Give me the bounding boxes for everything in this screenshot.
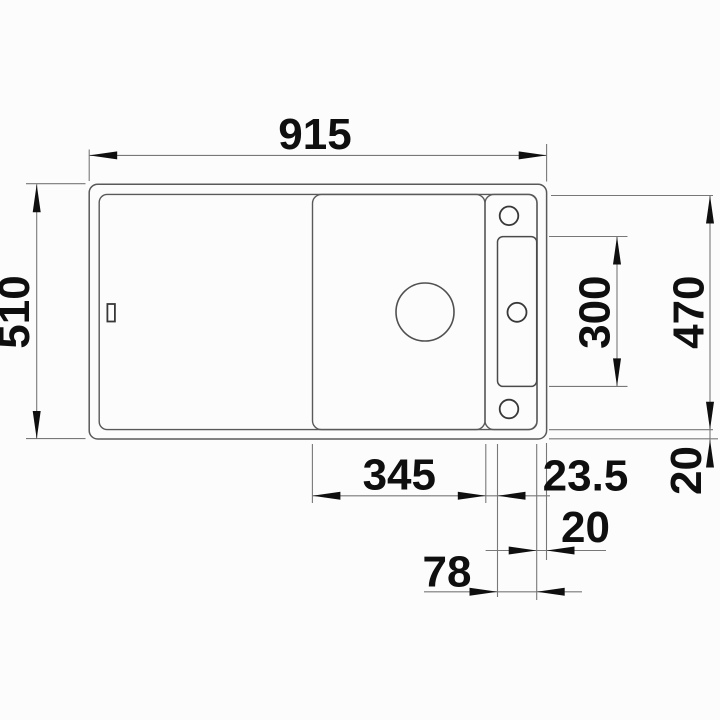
svg-text:78: 78 bbox=[423, 548, 472, 597]
svg-text:20: 20 bbox=[662, 446, 711, 495]
svg-text:915: 915 bbox=[278, 110, 351, 159]
svg-text:20: 20 bbox=[561, 503, 610, 552]
svg-text:23.5: 23.5 bbox=[543, 452, 629, 501]
svg-text:300: 300 bbox=[571, 275, 620, 348]
svg-text:470: 470 bbox=[665, 275, 714, 348]
svg-text:345: 345 bbox=[363, 451, 436, 500]
svg-text:510: 510 bbox=[0, 275, 39, 348]
